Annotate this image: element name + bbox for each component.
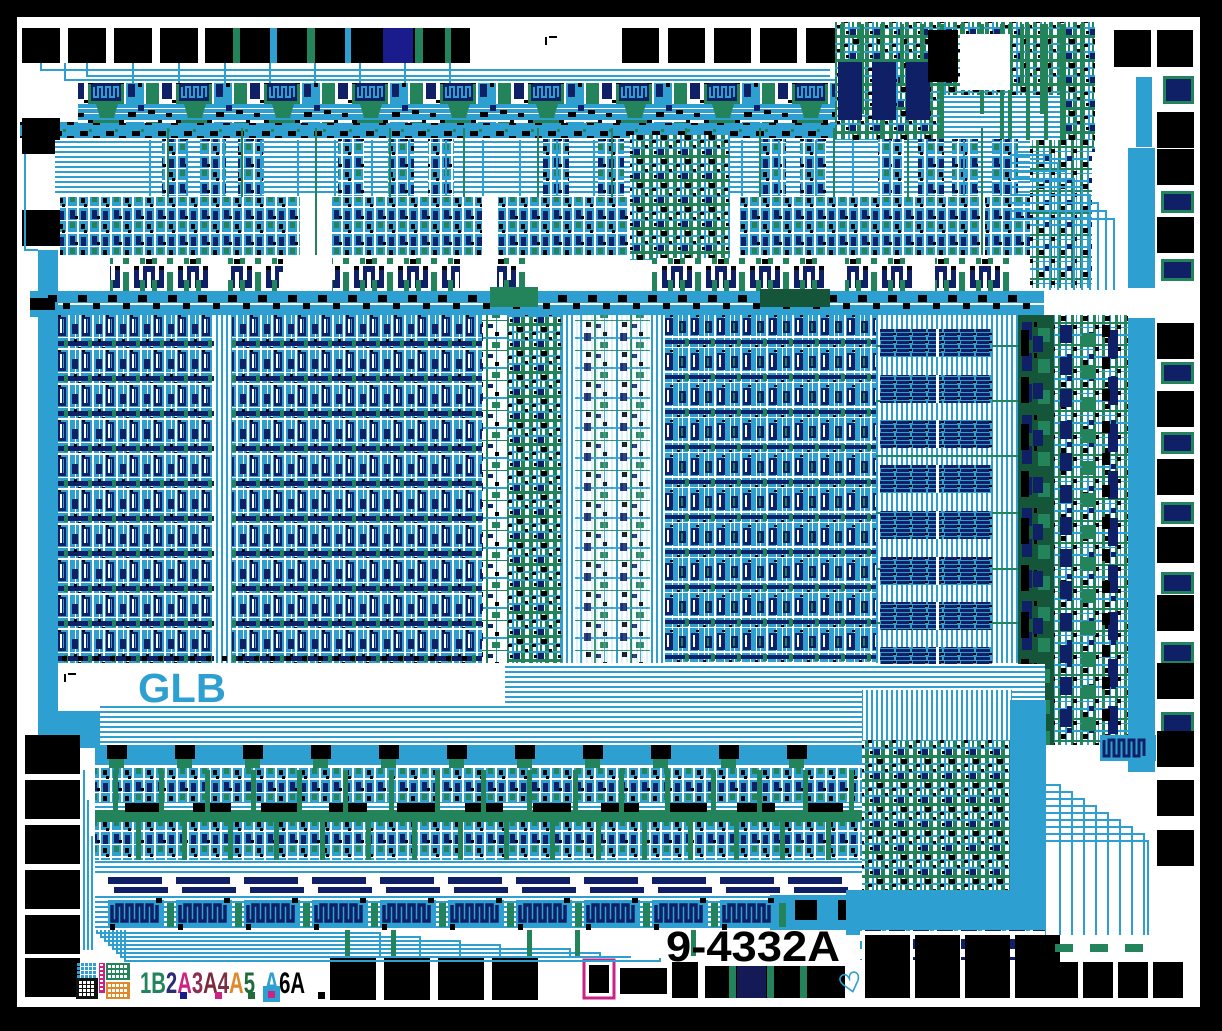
svg-text:9-4332A: 9-4332A xyxy=(666,923,840,971)
svg-text:GLB: GLB xyxy=(138,665,226,711)
svg-text:1B2A3A4A5A6A: 1B2A3A4A5A6A xyxy=(140,967,305,1000)
